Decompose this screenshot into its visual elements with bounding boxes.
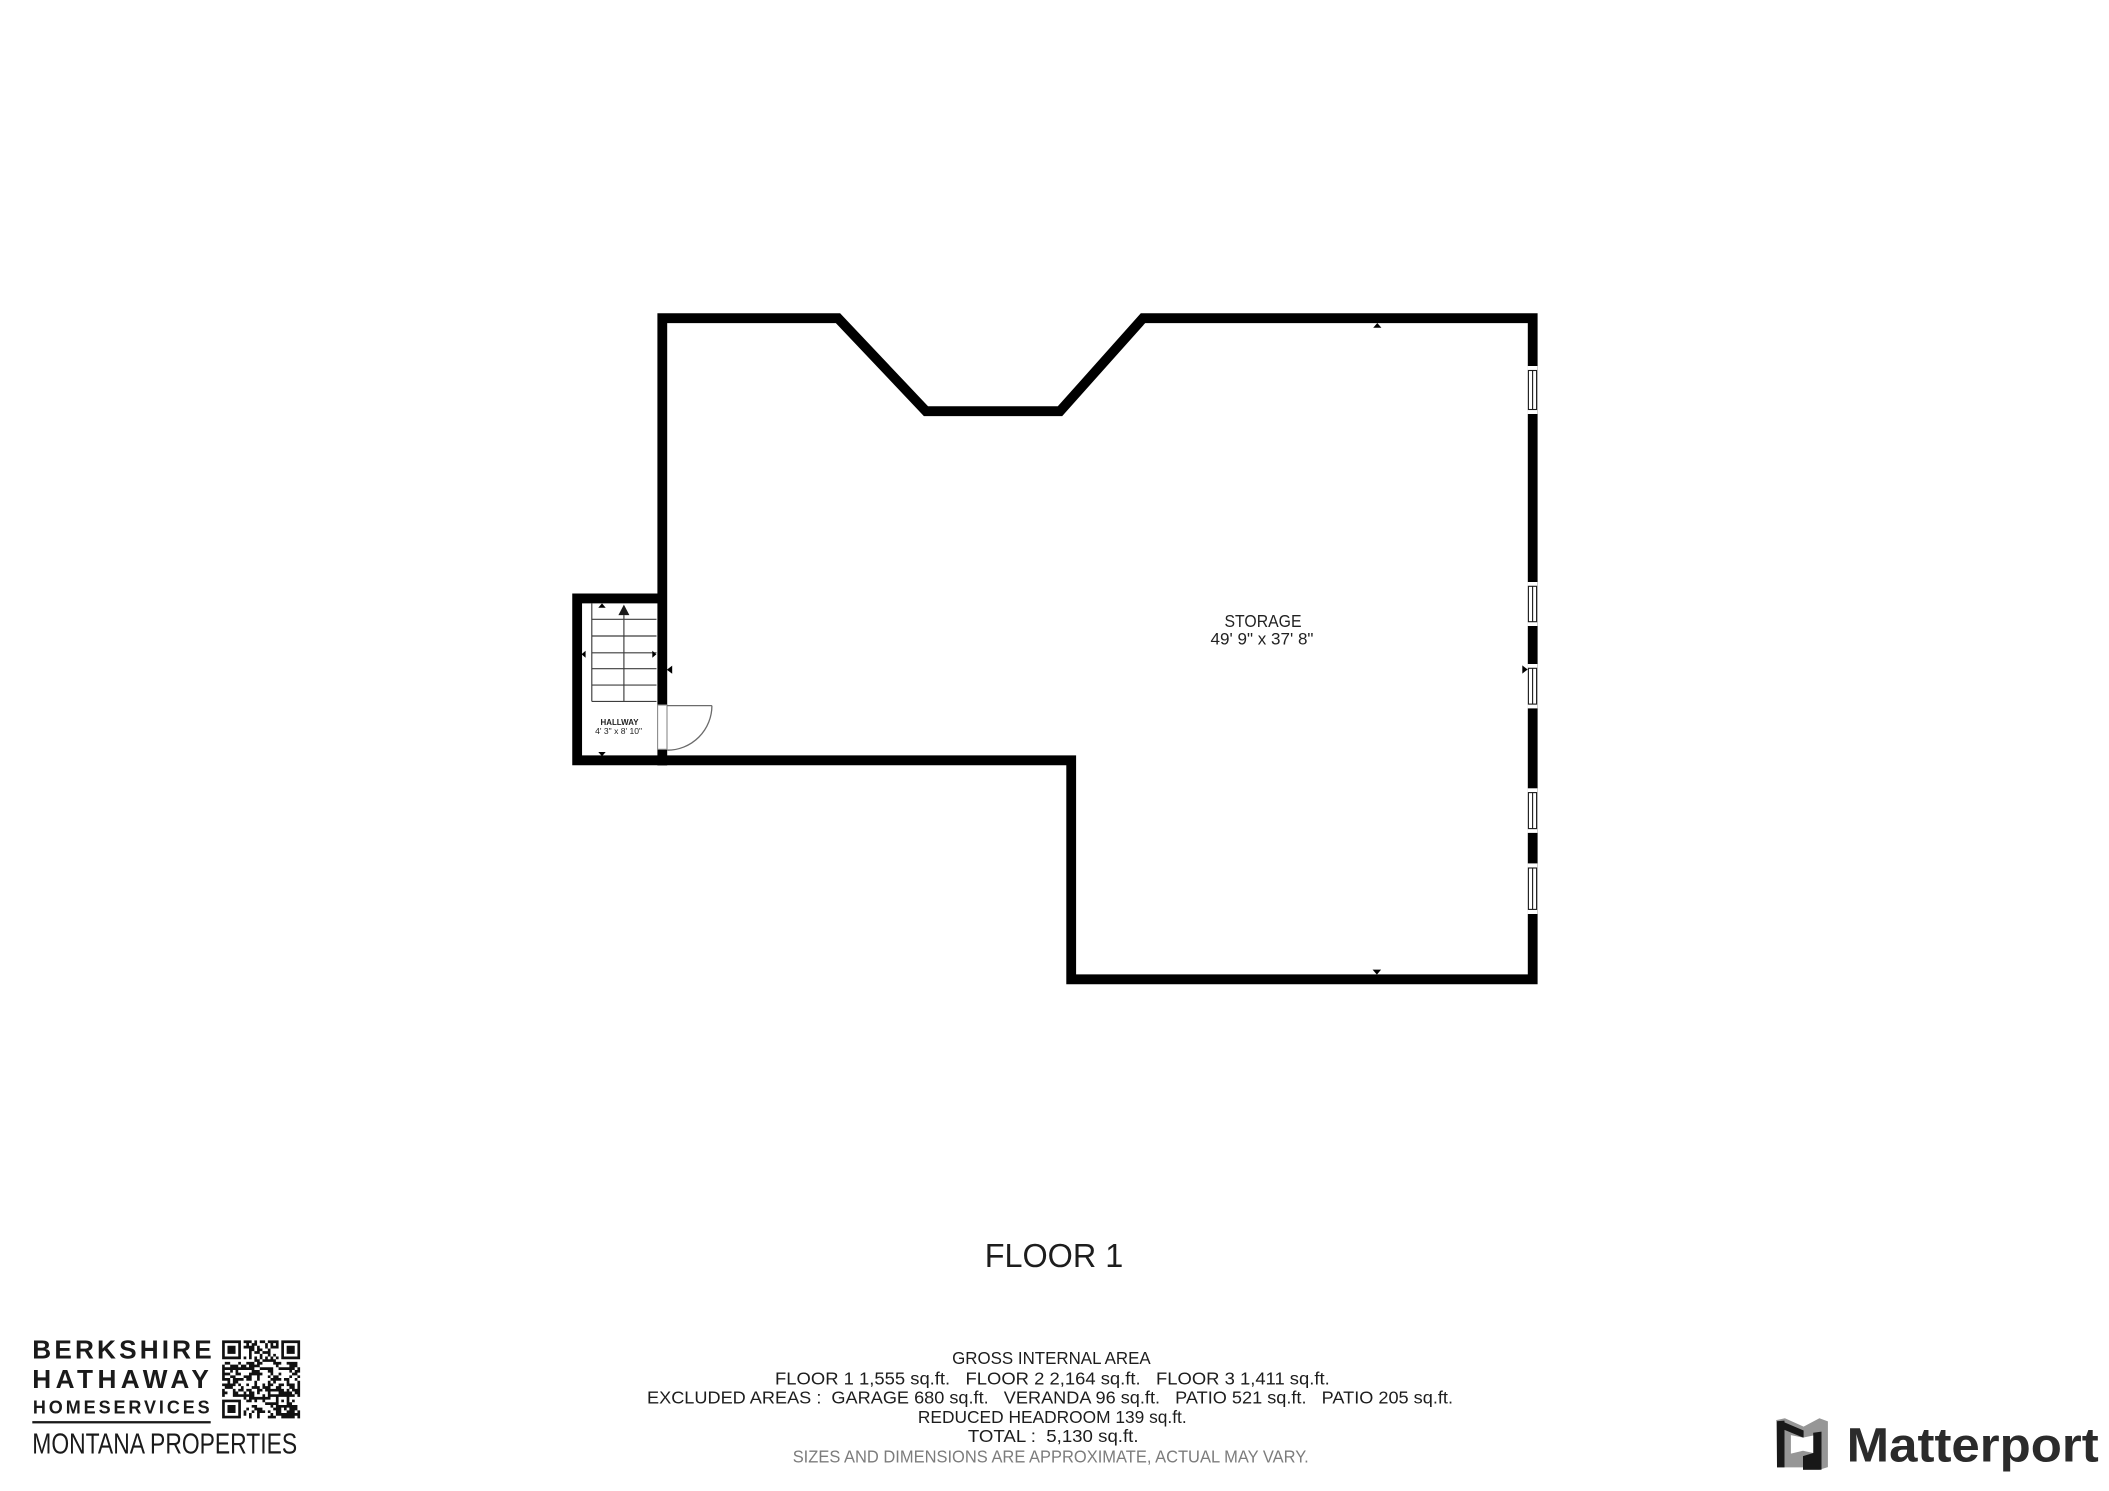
svg-text:Matterport: Matterport bbox=[1847, 1419, 2099, 1472]
svg-text:FLOOR 1 1,555 sq.ft. FLOOR 2: FLOOR 1 1,555 sq.ft. FLOOR 2 2,164 sq.ft… bbox=[775, 1369, 1330, 1389]
svg-text:GROSS INTERNAL AREA: GROSS INTERNAL AREA bbox=[952, 1348, 1151, 1368]
svg-text:HATHAWAY: HATHAWAY bbox=[32, 1364, 209, 1394]
svg-text:BERKSHIRE: BERKSHIRE bbox=[32, 1335, 211, 1365]
svg-text:TOTAL : 5,130 sq.ft.: TOTAL : 5,130 sq.ft. bbox=[968, 1426, 1139, 1446]
svg-text:HALLWAY: HALLWAY bbox=[601, 718, 640, 727]
svg-text:EXCLUDED AREAS : GARAGE 680 s: EXCLUDED AREAS : GARAGE 680 sq.ft. VERAN… bbox=[647, 1387, 1453, 1407]
svg-text:STORAGE: STORAGE bbox=[1225, 611, 1302, 631]
svg-text:HOMESERVICES: HOMESERVICES bbox=[33, 1398, 210, 1418]
svg-text:MONTANA PROPERTIES: MONTANA PROPERTIES bbox=[32, 1427, 297, 1459]
svg-text:4' 3" x 8' 10": 4' 3" x 8' 10" bbox=[595, 727, 642, 736]
svg-text:REDUCED HEADROOM 139 sq.ft.: REDUCED HEADROOM 139 sq.ft. bbox=[918, 1407, 1187, 1427]
svg-text:49' 9" x 37' 8": 49' 9" x 37' 8" bbox=[1211, 631, 1314, 649]
svg-text:SIZES AND DIMENSIONS ARE APPRO: SIZES AND DIMENSIONS ARE APPROXIMATE, AC… bbox=[793, 1446, 1309, 1466]
svg-text:FLOOR 1: FLOOR 1 bbox=[985, 1238, 1124, 1275]
